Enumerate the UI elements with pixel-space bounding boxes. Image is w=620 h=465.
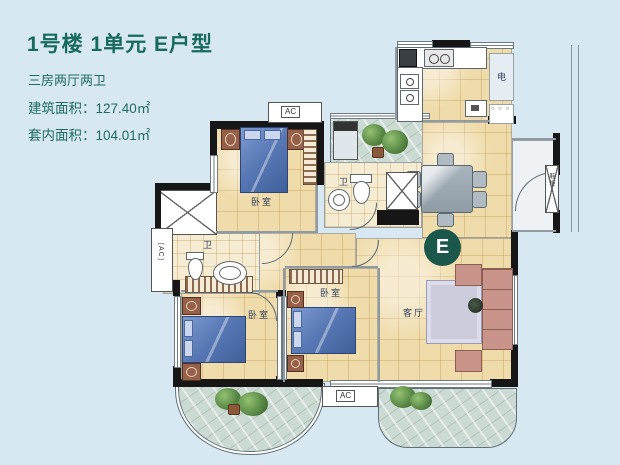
- nightstand-icon: [182, 297, 201, 315]
- dimension-line: [571, 45, 572, 232]
- nightstand-icon: [287, 291, 304, 308]
- ac-label-left: 〔AC〕: [157, 238, 164, 266]
- wall: [155, 183, 218, 190]
- bath2-label: 卫: [203, 238, 212, 251]
- window: [210, 155, 218, 193]
- armchair-icon: [455, 350, 482, 372]
- appliance-icon: [465, 100, 487, 117]
- nightstand-icon: [221, 129, 240, 150]
- nightstand-icon: [182, 363, 201, 381]
- plant-pot-icon: [372, 147, 384, 158]
- interior-wall: [283, 268, 285, 382]
- sink-icon: [400, 74, 419, 89]
- chair-icon: [437, 213, 454, 227]
- window: [174, 296, 181, 368]
- interior-wall: [316, 185, 318, 233]
- stove-icon: [424, 49, 454, 67]
- plant-icon: [410, 392, 432, 410]
- interior-wall: [378, 268, 380, 382]
- fridge-icon: [399, 49, 417, 67]
- chair-icon: [472, 191, 487, 208]
- pillow-icon: [184, 320, 193, 337]
- dimension-line: [578, 45, 579, 232]
- pillow-icon: [244, 130, 261, 140]
- entry-cabinet-label: 鞋柜: [548, 173, 554, 187]
- plant-icon: [382, 130, 408, 154]
- pillar-column: [277, 296, 287, 380]
- ac-label-bottom: AC: [336, 390, 355, 402]
- plant-pot-icon: [228, 404, 240, 415]
- shower-icon: [386, 172, 418, 210]
- washer-icon: [333, 121, 358, 160]
- pillow-icon: [293, 331, 302, 348]
- bedroom3-label: 卧室: [320, 286, 342, 299]
- sofa-icon: [482, 268, 513, 350]
- wall: [377, 210, 419, 225]
- floorplan: 卧室 卧室 卧室 电 ○ ○ ○ E 客厅: [0, 0, 620, 465]
- bedroom1-label: 卧室: [251, 195, 273, 208]
- electric-label: 电: [497, 70, 506, 83]
- interior-wall: [512, 230, 556, 232]
- cabinet-knobs: ○ ○ ○: [491, 106, 510, 112]
- wall: [316, 121, 324, 185]
- nightstand-icon: [287, 355, 304, 372]
- wardrobe-icon: [303, 129, 317, 185]
- wall: [173, 280, 180, 296]
- bedroom2-label: 卧室: [248, 308, 270, 321]
- bath1-label: 卫: [339, 175, 348, 188]
- wall: [210, 129, 217, 155]
- chair-icon: [472, 171, 487, 188]
- basin-icon: [213, 261, 247, 285]
- sink-icon: [400, 90, 419, 105]
- coffee-plant-icon: [468, 298, 483, 313]
- pillow-icon: [184, 340, 193, 357]
- unit-badge: E: [424, 229, 461, 266]
- interior-wall: [285, 266, 378, 268]
- ac-label-top: AC: [281, 106, 300, 118]
- wardrobe-icon: [289, 269, 343, 284]
- armchair-icon: [455, 264, 482, 286]
- pillow-icon: [293, 311, 302, 328]
- basin-icon: [328, 189, 350, 211]
- plant-icon: [238, 392, 268, 416]
- living-label: 客厅: [403, 306, 425, 319]
- dining-table-icon: [421, 165, 473, 213]
- pillow-icon: [264, 130, 281, 140]
- interior-wall: [512, 138, 556, 140]
